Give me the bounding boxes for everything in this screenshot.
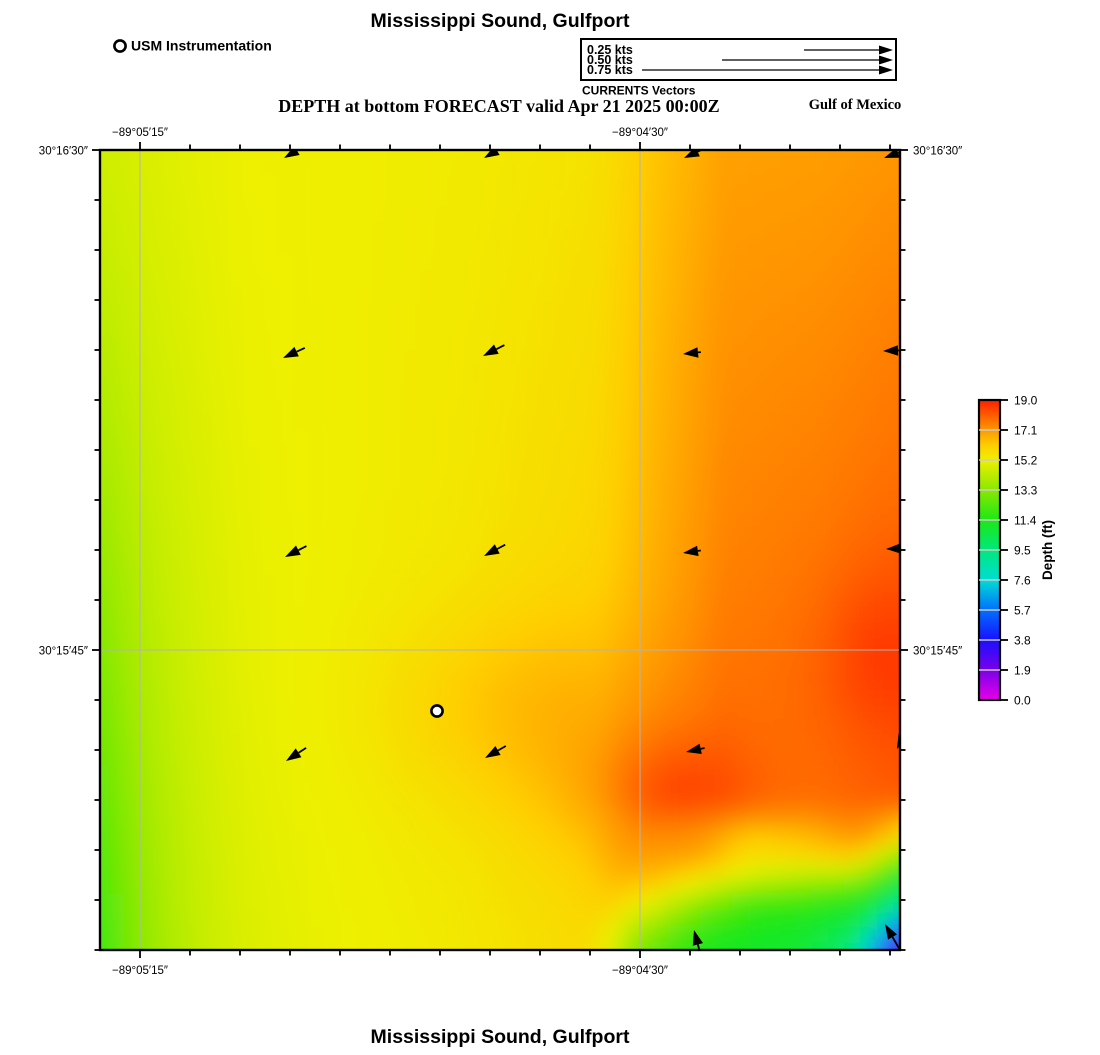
svg-text:Mississippi Sound, Gulfport: Mississippi Sound, Gulfport — [371, 10, 630, 32]
svg-text:9.5: 9.5 — [1014, 544, 1031, 558]
svg-text:30°15′45″: 30°15′45″ — [39, 646, 88, 658]
svg-text:30°16′30″: 30°16′30″ — [913, 146, 962, 158]
svg-text:30°15′45″: 30°15′45″ — [913, 646, 962, 658]
svg-text:USM Instrumentation: USM Instrumentation — [131, 38, 272, 54]
svg-text:15.2: 15.2 — [1014, 454, 1038, 468]
svg-text:7.6: 7.6 — [1014, 574, 1031, 588]
svg-text:−89°04′30″: −89°04′30″ — [612, 127, 668, 139]
svg-text:17.1: 17.1 — [1014, 424, 1038, 438]
svg-text:1.9: 1.9 — [1014, 664, 1031, 678]
svg-text:−89°04′30″: −89°04′30″ — [612, 965, 668, 977]
svg-text:DEPTH at bottom FORECAST valid: DEPTH at bottom FORECAST valid Apr 21 20… — [278, 96, 719, 116]
svg-text:0.0: 0.0 — [1014, 694, 1031, 708]
svg-text:13.3: 13.3 — [1014, 484, 1038, 498]
svg-text:5.7: 5.7 — [1014, 604, 1031, 618]
svg-text:Gulf of Mexico: Gulf of Mexico — [809, 97, 902, 113]
svg-text:Mississippi Sound, Gulfport: Mississippi Sound, Gulfport — [371, 1026, 630, 1048]
svg-text:30°16′30″: 30°16′30″ — [39, 146, 88, 158]
svg-text:0.75 kts: 0.75 kts — [587, 63, 633, 77]
svg-text:19.0: 19.0 — [1014, 394, 1038, 408]
svg-text:Depth (ft): Depth (ft) — [1040, 520, 1055, 580]
svg-text:−89°05′15″: −89°05′15″ — [112, 965, 168, 977]
svg-text:−89°05′15″: −89°05′15″ — [112, 127, 168, 139]
svg-text:3.8: 3.8 — [1014, 634, 1031, 648]
svg-text:11.4: 11.4 — [1014, 514, 1037, 528]
